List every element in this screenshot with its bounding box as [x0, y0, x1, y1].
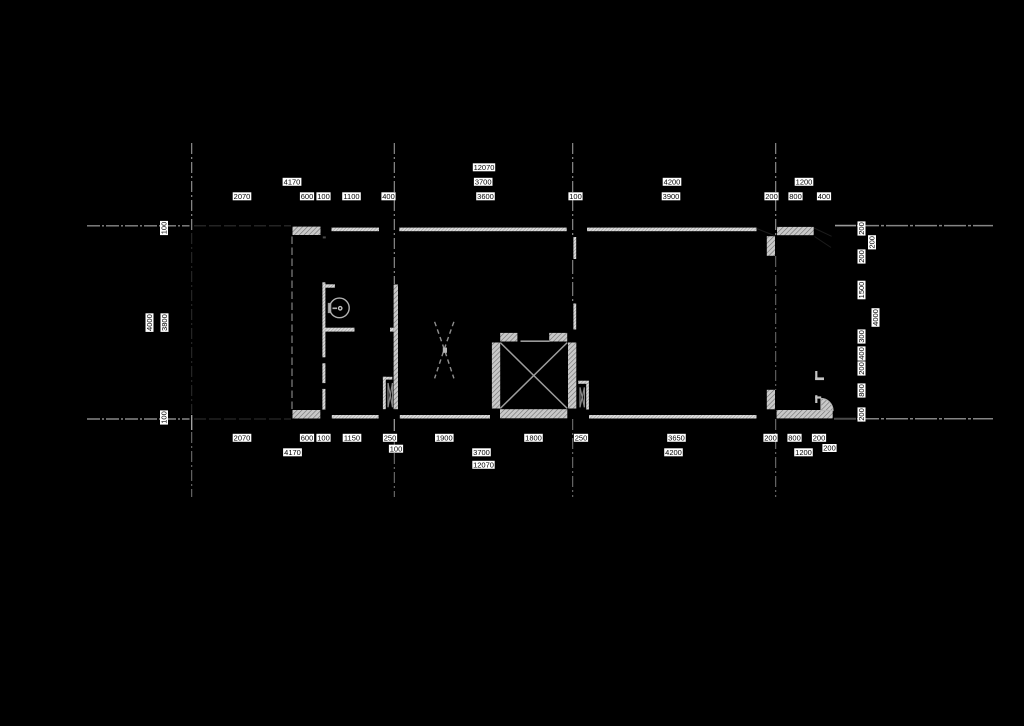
- svg-text:3900: 3900: [663, 192, 680, 201]
- svg-text:300: 300: [857, 330, 866, 343]
- svg-text:600: 600: [301, 434, 314, 443]
- svg-text:4200: 4200: [665, 448, 682, 457]
- svg-text:100: 100: [160, 222, 169, 235]
- svg-text:250: 250: [384, 434, 397, 443]
- svg-text:4200: 4200: [664, 178, 681, 187]
- svg-text:200: 200: [857, 250, 866, 263]
- svg-text:800: 800: [789, 192, 802, 201]
- svg-text:100: 100: [317, 434, 330, 443]
- svg-text:4000: 4000: [145, 314, 154, 331]
- svg-text:250: 250: [575, 434, 588, 443]
- svg-text:2070: 2070: [234, 192, 251, 201]
- svg-text:4170: 4170: [284, 178, 301, 187]
- svg-text:100: 100: [160, 411, 169, 424]
- svg-text:200: 200: [765, 192, 778, 201]
- svg-text:200: 200: [857, 362, 866, 375]
- svg-text:600: 600: [301, 192, 314, 201]
- svg-text:400: 400: [818, 192, 831, 201]
- svg-text:1200: 1200: [796, 178, 813, 187]
- svg-text:200: 200: [813, 434, 826, 443]
- svg-text:4000: 4000: [871, 309, 880, 326]
- svg-text:4170: 4170: [284, 448, 301, 457]
- svg-text:800: 800: [857, 384, 866, 397]
- svg-text:200: 200: [857, 408, 866, 421]
- svg-text:3600: 3600: [477, 192, 494, 201]
- svg-text:200: 200: [857, 222, 866, 235]
- svg-text:3650: 3650: [668, 434, 685, 443]
- svg-text:100: 100: [317, 192, 330, 201]
- svg-text:3700: 3700: [473, 448, 490, 457]
- svg-text:1100: 1100: [343, 192, 359, 201]
- svg-text:1200: 1200: [795, 448, 812, 457]
- svg-text:100: 100: [390, 444, 403, 453]
- svg-text:3700: 3700: [475, 178, 492, 187]
- svg-text:1800: 1800: [525, 434, 542, 443]
- svg-text:12070: 12070: [474, 163, 495, 172]
- svg-text:3800: 3800: [160, 314, 169, 331]
- svg-text:100: 100: [569, 192, 582, 201]
- svg-text:1150: 1150: [344, 434, 360, 443]
- svg-text:2070: 2070: [234, 434, 251, 443]
- svg-text:1900: 1900: [436, 434, 453, 443]
- svg-text:200: 200: [764, 434, 777, 443]
- svg-text:200: 200: [868, 236, 877, 249]
- svg-text:800: 800: [788, 434, 801, 443]
- svg-text:400: 400: [857, 347, 866, 360]
- svg-text:200: 200: [823, 444, 836, 453]
- svg-text:1500: 1500: [857, 282, 866, 299]
- svg-text:400: 400: [382, 192, 395, 201]
- svg-text:12070: 12070: [473, 461, 494, 470]
